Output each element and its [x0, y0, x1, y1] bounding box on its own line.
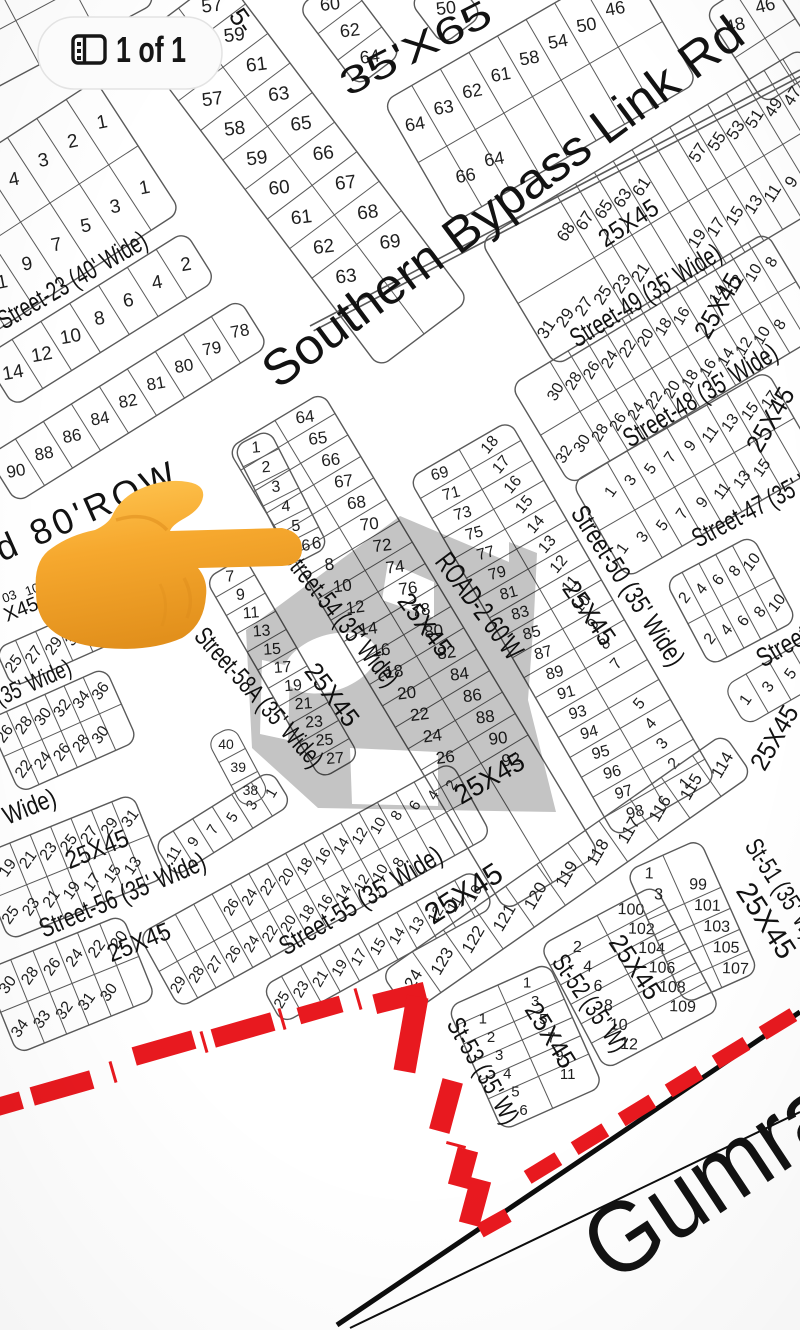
svg-text:1 of 1: 1 of 1	[116, 29, 186, 70]
